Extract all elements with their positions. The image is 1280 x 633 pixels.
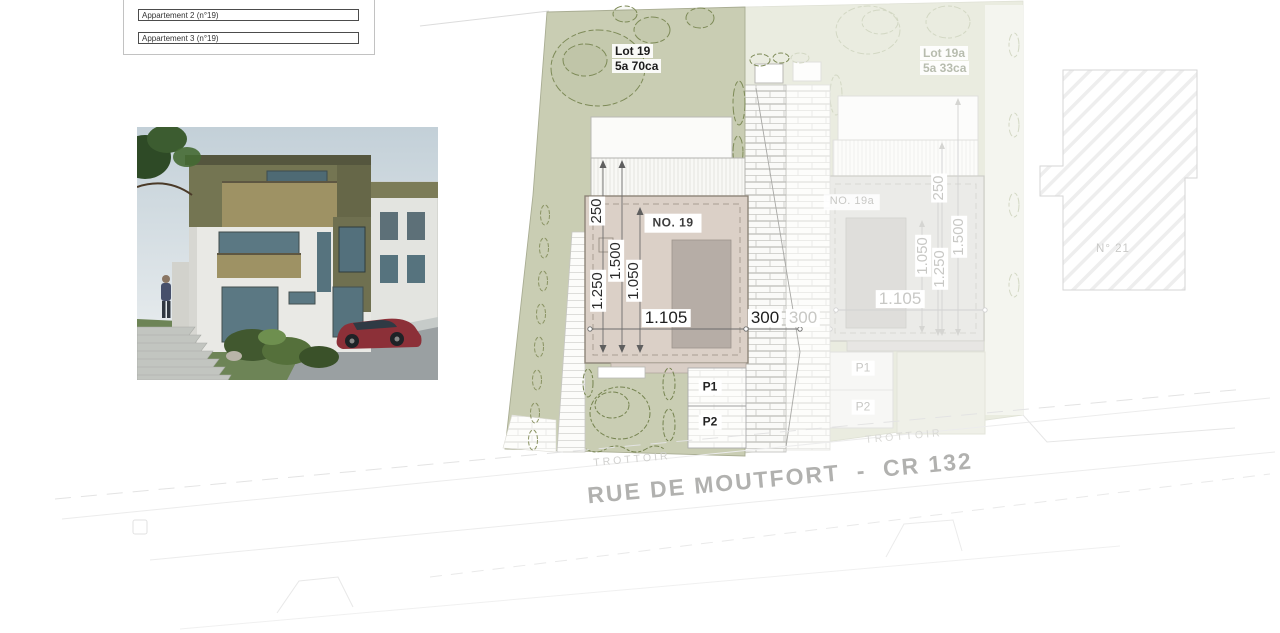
dim-depth-total-lot19: 1.500 xyxy=(608,240,624,282)
building-no19-tag: NO. 19 xyxy=(644,214,701,233)
driveway xyxy=(740,85,830,452)
building-no19a-tag: NO. 19a xyxy=(824,194,880,210)
parking-p2-lot19a: P2 xyxy=(852,400,875,415)
lot19a-area: 5a 33ca xyxy=(920,61,969,75)
dim-setback-lot19: 250 xyxy=(589,196,605,225)
legend-item-apartment3: Appartement 3 (n°19) xyxy=(138,32,359,44)
lot19-area: 5a 70ca xyxy=(612,59,661,73)
dim-depth-building-lot19a: 1.250 xyxy=(932,248,948,290)
dim-side-lot19: 300 xyxy=(748,309,782,327)
lot19a-name: Lot 19a xyxy=(920,46,968,60)
faded-planter xyxy=(793,62,821,81)
parking-p1-lot19a: P1 xyxy=(852,361,875,376)
lot19a-parking-pad xyxy=(825,352,985,434)
background-building xyxy=(370,182,438,342)
dim-width-lot19: 1.105 xyxy=(642,309,691,327)
site-plan-page: Appartement 2 (n°19) Appartement 3 (n°19… xyxy=(0,0,1280,633)
dim-setback-lot19a: 250 xyxy=(931,173,947,202)
dim-side-lot19a: 300 xyxy=(786,309,820,327)
main-building xyxy=(172,155,371,352)
legend-item-apartment2: Appartement 2 (n°19) xyxy=(138,9,359,21)
legend-box: Appartement 2 (n°19) Appartement 3 (n°19… xyxy=(123,0,375,55)
dim-depth-building-lot19: 1.250 xyxy=(590,270,606,312)
planter xyxy=(755,64,783,83)
legend-label: Appartement 2 (n°19) xyxy=(142,11,219,20)
lot19-title-block: Lot 19 5a 70ca xyxy=(612,44,661,74)
neighbor-building-n21 xyxy=(1040,70,1197,290)
dim-depth-inner-lot19: 1.050 xyxy=(626,260,642,302)
neighbor-n21-label: N° 21 xyxy=(1096,243,1130,255)
lot19-name: Lot 19 xyxy=(612,44,653,58)
lot19a-title-block: Lot 19a 5a 33ca xyxy=(920,46,969,76)
dim-depth-total-lot19a: 1.500 xyxy=(951,216,967,258)
legend-label: Appartement 3 (n°19) xyxy=(142,34,219,43)
parking-p2-lot19: P2 xyxy=(699,415,722,430)
parking-p1-lot19: P1 xyxy=(699,380,722,395)
building-photo xyxy=(137,127,438,380)
dim-depth-inner-lot19a: 1.050 xyxy=(915,235,931,277)
dim-width-lot19a: 1.105 xyxy=(876,290,925,308)
